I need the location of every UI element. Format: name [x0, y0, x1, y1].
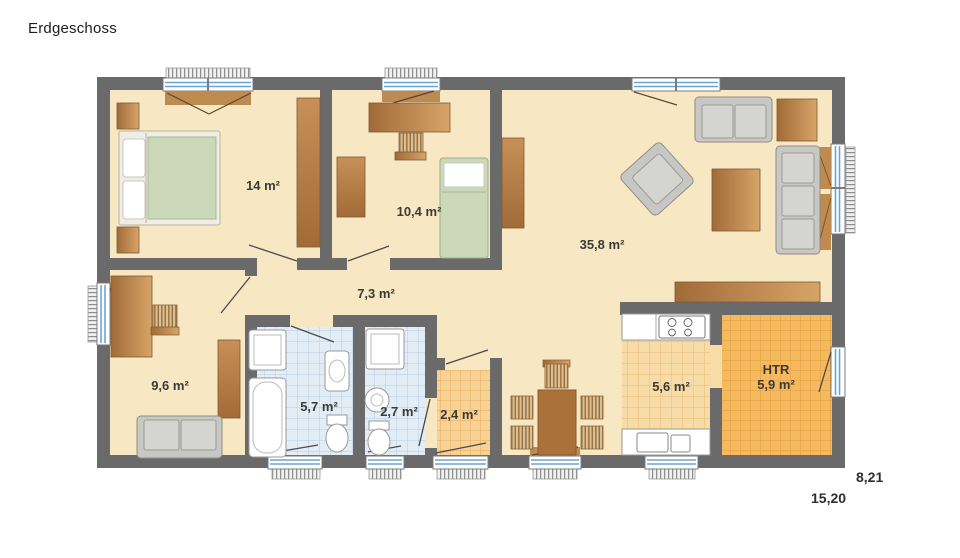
- label-study: 9,6 m²: [151, 378, 189, 393]
- wall-kidsroom-living: [490, 90, 502, 264]
- label-htr-name: HTR: [763, 362, 790, 377]
- dining-chair: [543, 360, 570, 388]
- desk: [111, 276, 152, 357]
- shower: [249, 330, 286, 370]
- label-hallway: 7,3 m²: [357, 286, 395, 301]
- label-kitchen: 5,6 m²: [652, 379, 690, 394]
- cooktop: [659, 316, 705, 338]
- wall-bath-wc-top: [333, 315, 425, 327]
- double-bed: [119, 131, 220, 225]
- label-entry: 2,4 m²: [440, 407, 478, 422]
- label-bathroom: 5,7 m²: [300, 399, 338, 414]
- nightstand: [117, 227, 139, 253]
- dimension-depth: 8,21: [856, 469, 883, 485]
- toilet: [368, 421, 390, 455]
- label-kidsroom: 10,4 m²: [397, 204, 442, 219]
- dimension-width: 15,20: [811, 490, 846, 506]
- wall-kidsroom-hall: [390, 258, 502, 270]
- wall-kitchen-htr-top: [710, 315, 722, 345]
- kitchen-htr-doorway: [710, 345, 722, 388]
- floorplan-drawing: 14 m² 10,4 m² 35,8 m² 7,3 m² 9,6 m² 5,7 …: [0, 0, 960, 558]
- label-living: 35,8 m²: [580, 237, 625, 252]
- desk: [369, 103, 450, 132]
- dimension-labels: 8,21 15,20: [811, 469, 883, 506]
- dining-chair: [581, 426, 603, 449]
- wall-wc-entry-stub: [425, 448, 437, 455]
- window-sill: [382, 91, 440, 102]
- wall-entry-top-stub: [425, 358, 445, 370]
- kidsroom-window: [382, 68, 440, 105]
- wall-entry-dining: [490, 358, 502, 455]
- bathtub: [249, 378, 286, 457]
- living-right-window: [818, 144, 855, 250]
- sideboard: [777, 99, 817, 141]
- shelf: [218, 340, 240, 418]
- dining-chair: [581, 396, 603, 419]
- single-bed: [440, 158, 488, 258]
- sofa-two-seat: [137, 416, 222, 458]
- sofa-three-seat: [776, 146, 820, 254]
- kitchen-counter-sink: [622, 429, 710, 455]
- nightstand: [117, 103, 139, 129]
- shower: [366, 329, 404, 369]
- wall-wc-entry-top: [425, 315, 437, 398]
- wall-living-kitchen: [620, 302, 832, 315]
- wall-bath-top-left: [245, 315, 290, 327]
- wall-kitchen-htr-bottom: [710, 388, 722, 455]
- label-bedroom: 14 m²: [246, 178, 281, 193]
- long-sideboard: [675, 282, 820, 302]
- sink: [325, 351, 349, 391]
- dining-chair: [511, 426, 533, 449]
- coffee-table: [712, 169, 760, 231]
- desk-chair: [395, 133, 426, 160]
- wall-bedroom-kidsroom: [320, 90, 332, 258]
- wall-study-post: [245, 258, 257, 276]
- wall-bath-wc: [353, 327, 365, 455]
- floorplan-page: Erdgeschoss: [0, 0, 960, 558]
- shelf: [502, 138, 524, 228]
- wall-bedroom-hall: [110, 258, 247, 270]
- sofa-two-seat: [695, 97, 772, 142]
- kitchen-counter-top: [622, 314, 710, 340]
- dresser: [337, 157, 365, 217]
- wall-hall-mid: [297, 258, 347, 270]
- dining-table: [538, 390, 576, 455]
- label-htr-area: 5,9 m²: [757, 377, 795, 392]
- label-wc: 2,7 m²: [380, 404, 418, 419]
- desk-chair: [151, 305, 179, 335]
- toilet: [326, 415, 348, 452]
- dining-chair: [511, 396, 533, 419]
- wardrobe: [297, 98, 320, 247]
